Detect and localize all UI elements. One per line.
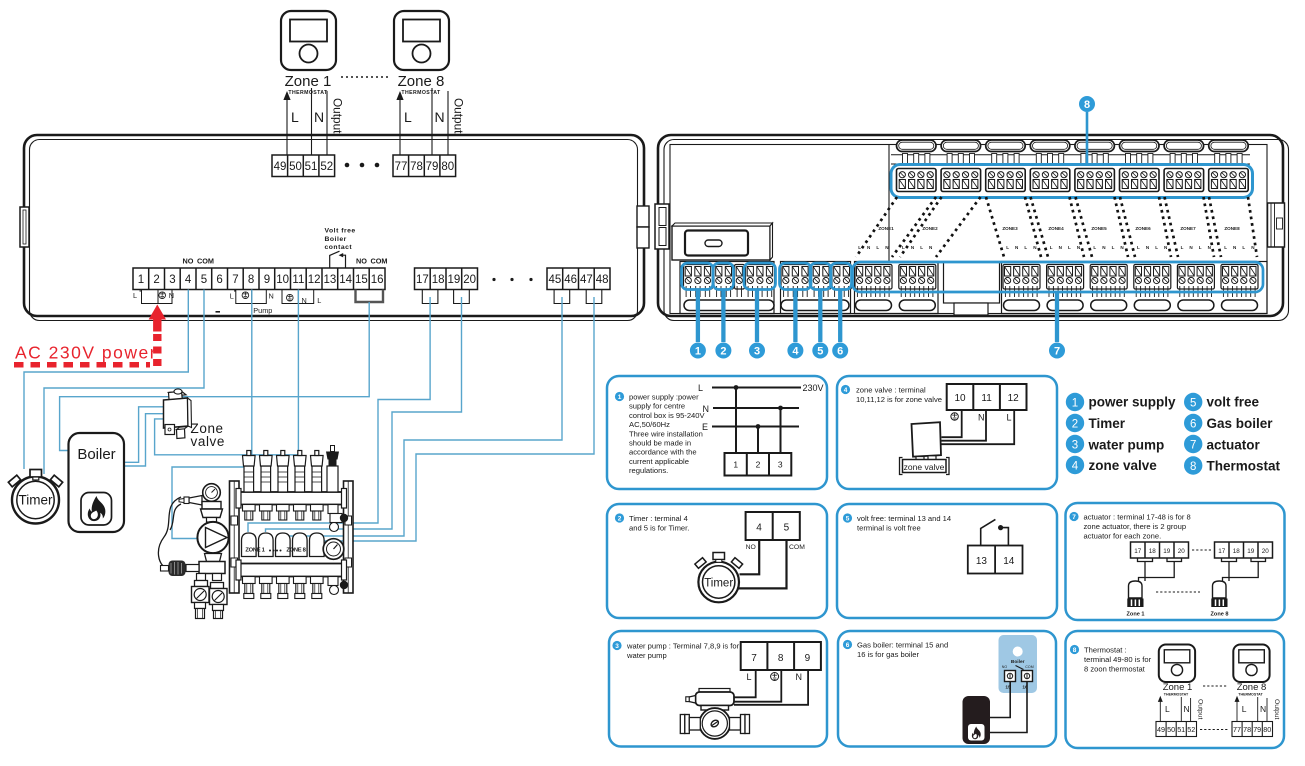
svg-text:L: L <box>1007 413 1012 423</box>
svg-text:L: L <box>291 109 299 125</box>
svg-text:51: 51 <box>305 161 318 173</box>
svg-text:79: 79 <box>426 161 439 173</box>
svg-text:terminal is volt free: terminal is volt free <box>857 523 921 532</box>
svg-text:78: 78 <box>410 161 423 173</box>
svg-text:1: 1 <box>695 346 701 358</box>
svg-text:L: L <box>1112 245 1115 250</box>
svg-text:3: 3 <box>754 346 760 358</box>
svg-text:N: N <box>978 413 985 423</box>
svg-text:L: L <box>1224 245 1227 250</box>
svg-text:NO: NO <box>1002 665 1008 669</box>
svg-text:L: L <box>1199 245 1202 250</box>
svg-text:7: 7 <box>232 274 238 286</box>
svg-text:COM: COM <box>197 257 214 266</box>
svg-text:L: L <box>1155 245 1158 250</box>
svg-text:17: 17 <box>416 274 429 286</box>
svg-text:51: 51 <box>1177 725 1185 734</box>
svg-text:7: 7 <box>751 653 757 664</box>
svg-text:contact: contact <box>325 244 353 251</box>
svg-text:L: L <box>1093 245 1096 250</box>
svg-text:regulations.: regulations. <box>629 466 668 475</box>
svg-text:1: 1 <box>733 460 738 470</box>
svg-text:77: 77 <box>1233 725 1241 734</box>
svg-text:6: 6 <box>1190 419 1196 431</box>
svg-text:Timer: Timer <box>704 578 733 590</box>
svg-text:ZONE4: ZONE4 <box>1048 226 1064 231</box>
svg-text:Pump: Pump <box>253 306 272 315</box>
svg-text:N: N <box>1260 704 1266 714</box>
svg-text:N: N <box>1208 245 1212 250</box>
svg-text:N: N <box>1184 704 1190 714</box>
svg-text:49: 49 <box>1157 725 1165 734</box>
svg-text:ZONE 8: ZONE 8 <box>286 548 306 554</box>
svg-text:and 5 is for Timer.: and 5 is for Timer. <box>629 523 689 532</box>
svg-text:Output: Output <box>1273 699 1280 720</box>
svg-text:N: N <box>1120 245 1124 250</box>
svg-text:12: 12 <box>308 274 321 286</box>
svg-text:THERMOSTAT: THERMOSTAT <box>401 90 441 96</box>
svg-text:3: 3 <box>615 643 619 650</box>
svg-text:8: 8 <box>778 653 784 664</box>
svg-text:should be made in: should be made in <box>629 439 691 448</box>
svg-text:AC,50/60Hz: AC,50/60Hz <box>629 420 670 429</box>
svg-text:N: N <box>1189 245 1193 250</box>
svg-text:20: 20 <box>1262 548 1270 555</box>
svg-text:L: L <box>404 109 412 125</box>
svg-text:14: 14 <box>339 274 352 286</box>
svg-text:5: 5 <box>201 274 207 286</box>
svg-text:3: 3 <box>778 460 783 470</box>
svg-text:Zone 1: Zone 1 <box>1163 682 1193 693</box>
svg-text:Boiler: Boiler <box>1011 659 1025 665</box>
svg-text:water pump : Terminal 7,8,9 is: water pump : Terminal 7,8,9 is for <box>626 642 740 651</box>
svg-text:5: 5 <box>817 346 823 358</box>
svg-text:4: 4 <box>756 523 762 534</box>
svg-text:ZONE2: ZONE2 <box>922 226 938 231</box>
svg-text:L: L <box>1242 245 1245 250</box>
svg-text:actuator for each zone.: actuator for each zone. <box>1084 532 1162 541</box>
svg-text:ZONE 1: ZONE 1 <box>245 548 265 554</box>
svg-text:accordance with the: accordance with the <box>629 448 697 457</box>
svg-text:ZONE3: ZONE3 <box>1002 226 1018 231</box>
svg-text:L: L <box>133 291 137 300</box>
svg-text:Boiler: Boiler <box>77 446 115 463</box>
svg-text:COM: COM <box>789 544 805 551</box>
svg-text:N: N <box>929 245 933 250</box>
svg-text:10: 10 <box>954 393 966 404</box>
svg-text:ZONE6: ZONE6 <box>1135 226 1151 231</box>
svg-text:NO: NO <box>356 257 367 266</box>
svg-text:5: 5 <box>1190 398 1196 410</box>
svg-text:230V: 230V <box>803 383 824 393</box>
svg-text:8: 8 <box>1084 99 1090 111</box>
svg-text:E: E <box>702 422 708 432</box>
svg-text:N: N <box>1164 245 1168 250</box>
svg-text:L: L <box>747 672 752 682</box>
svg-text:N: N <box>269 292 274 301</box>
svg-text:volt free: terminal 13 and 14: volt free: terminal 13 and 14 <box>857 514 951 523</box>
svg-text:zone valve: zone valve <box>1089 458 1158 473</box>
svg-text:4: 4 <box>792 346 799 358</box>
svg-text:45: 45 <box>549 274 562 286</box>
svg-text:5: 5 <box>846 516 850 523</box>
svg-text:zone actuator, there is 2 grou: zone actuator, there is 2 group <box>1084 522 1187 531</box>
svg-text:L: L <box>1181 245 1184 250</box>
svg-text:80: 80 <box>441 161 454 173</box>
svg-text:11: 11 <box>292 274 304 286</box>
svg-text:9: 9 <box>264 274 270 286</box>
svg-text:volt free: volt free <box>1207 395 1260 410</box>
svg-text:N: N <box>796 672 803 682</box>
svg-text:NO: NO <box>183 257 194 266</box>
svg-text:Volt free: Volt free <box>325 228 356 235</box>
svg-text:6: 6 <box>846 642 850 649</box>
svg-text:6: 6 <box>837 346 843 358</box>
svg-text:power supply: power supply <box>1089 395 1177 410</box>
svg-text:9: 9 <box>805 653 811 664</box>
svg-text:6: 6 <box>216 274 222 286</box>
svg-text:17: 17 <box>1218 548 1226 555</box>
svg-text:7: 7 <box>1190 440 1196 452</box>
svg-text:N: N <box>1077 245 1081 250</box>
svg-text:13: 13 <box>976 556 988 567</box>
svg-text:L: L <box>1024 245 1027 250</box>
svg-text:50: 50 <box>1167 725 1175 734</box>
svg-text:N: N <box>867 245 871 250</box>
svg-text:N: N <box>314 109 324 125</box>
svg-text:ZONE8: ZONE8 <box>1224 226 1240 231</box>
svg-text:water pump: water pump <box>1088 438 1165 453</box>
svg-text:50: 50 <box>289 161 302 173</box>
svg-text:L: L <box>1068 245 1071 250</box>
svg-text:THERMOSTAT: THERMOSTAT <box>1164 693 1189 697</box>
svg-text:5: 5 <box>784 523 790 534</box>
svg-text:20: 20 <box>463 274 476 286</box>
svg-text:THERMOSTAT: THERMOSTAT <box>288 90 328 96</box>
svg-text:zone valve: zone valve <box>904 462 945 472</box>
svg-text:1: 1 <box>1072 398 1078 410</box>
svg-text:Zone 8: Zone 8 <box>398 73 445 90</box>
svg-text:N: N <box>703 404 710 414</box>
svg-text:Output: Output <box>331 98 345 134</box>
svg-text:AC 230V power: AC 230V power <box>15 343 157 363</box>
svg-text:48: 48 <box>596 274 609 286</box>
svg-text:79: 79 <box>1253 725 1261 734</box>
svg-text:77: 77 <box>395 161 408 173</box>
svg-text:52: 52 <box>1187 725 1195 734</box>
svg-text:16 is for gas boiler: 16 is for gas boiler <box>857 650 920 659</box>
svg-text:10,11,12 is for zone valve: 10,11,12 is for zone valve <box>856 395 942 404</box>
svg-text:78: 78 <box>1243 725 1251 734</box>
svg-text:52: 52 <box>320 161 333 173</box>
svg-text:2: 2 <box>756 460 761 470</box>
svg-text:3: 3 <box>169 274 175 286</box>
svg-text:current applicable: current applicable <box>629 457 689 466</box>
svg-text:15: 15 <box>355 274 368 286</box>
svg-text:L: L <box>920 245 923 250</box>
svg-text:L: L <box>858 245 861 250</box>
svg-text:2: 2 <box>618 516 622 523</box>
svg-text:4: 4 <box>1072 461 1079 473</box>
svg-text:N: N <box>1059 245 1063 250</box>
svg-text:water pump: water pump <box>626 651 667 660</box>
svg-text:Thermostat :: Thermostat : <box>1084 646 1127 655</box>
svg-text:COM: COM <box>370 257 387 266</box>
svg-text:10: 10 <box>276 274 289 286</box>
svg-text:2: 2 <box>720 346 726 358</box>
svg-text:L: L <box>1006 245 1009 250</box>
svg-text:12: 12 <box>1008 393 1020 404</box>
svg-text:Zone 1: Zone 1 <box>1126 612 1144 618</box>
svg-text:18: 18 <box>1233 548 1241 555</box>
svg-text:1: 1 <box>138 274 144 286</box>
svg-text:N: N <box>1146 245 1150 250</box>
svg-text:L: L <box>230 292 234 301</box>
svg-text:L: L <box>902 245 905 250</box>
svg-text:L: L <box>317 296 321 305</box>
svg-text:47: 47 <box>580 274 593 286</box>
svg-text:Output: Output <box>1197 699 1204 720</box>
svg-text:N: N <box>911 245 915 250</box>
svg-text:7: 7 <box>1054 346 1060 358</box>
svg-text:THERMOSTAT: THERMOSTAT <box>1238 693 1263 697</box>
svg-text:Timer : terminal 4: Timer : terminal 4 <box>629 514 688 523</box>
svg-text:18: 18 <box>432 274 445 286</box>
svg-text:2: 2 <box>1072 419 1078 431</box>
svg-text:terminal 49-80 is for: terminal 49-80 is for <box>1084 655 1152 664</box>
svg-text:zone valve : terminal: zone valve : terminal <box>856 386 926 395</box>
svg-text:20: 20 <box>1178 548 1186 555</box>
svg-text:8: 8 <box>1073 647 1077 654</box>
svg-text:8: 8 <box>248 274 254 286</box>
svg-text:16: 16 <box>371 274 384 286</box>
svg-text:N: N <box>1233 245 1237 250</box>
svg-text:control box is 95-240V: control box is 95-240V <box>629 411 705 420</box>
svg-text:1: 1 <box>618 394 622 401</box>
svg-text:ZONE1: ZONE1 <box>878 226 894 231</box>
svg-text:ZONE7: ZONE7 <box>1180 226 1196 231</box>
svg-text:N: N <box>1251 245 1255 250</box>
svg-text:4: 4 <box>844 387 848 394</box>
svg-text:NO: NO <box>746 544 756 551</box>
svg-text:L: L <box>1050 245 1053 250</box>
svg-text:N: N <box>1102 245 1106 250</box>
svg-text:valve: valve <box>191 434 226 449</box>
svg-text:8 zoon thermostat: 8 zoon thermostat <box>1084 665 1146 674</box>
svg-text:49: 49 <box>274 161 287 173</box>
svg-text:19: 19 <box>1163 548 1171 555</box>
svg-text:L: L <box>876 245 879 250</box>
svg-text:COM: COM <box>1025 665 1033 669</box>
svg-text:Timer: Timer <box>19 493 53 508</box>
svg-text:4: 4 <box>185 274 192 286</box>
svg-text:Thermostat: Thermostat <box>1207 459 1281 474</box>
svg-text:power supply :power: power supply :power <box>629 393 699 402</box>
svg-text:N: N <box>1033 245 1037 250</box>
svg-text:46: 46 <box>564 274 577 286</box>
svg-text:11: 11 <box>981 393 992 404</box>
svg-text:N: N <box>169 291 174 300</box>
svg-text:supply for centre: supply for centre <box>629 402 685 411</box>
svg-text:Zone 1: Zone 1 <box>285 73 332 90</box>
svg-text:actuator: actuator <box>1207 438 1261 453</box>
svg-text:Output: Output <box>452 98 466 134</box>
svg-text:N: N <box>302 296 307 305</box>
svg-text:17: 17 <box>1134 548 1142 555</box>
svg-text:Timer: Timer <box>1089 416 1126 431</box>
svg-text:actuator : terminal 17-48 is f: actuator : terminal 17-48 is for 8 <box>1084 513 1191 522</box>
svg-text:19: 19 <box>448 274 461 286</box>
svg-text:80: 80 <box>1263 725 1271 734</box>
svg-text:8: 8 <box>1190 461 1196 473</box>
svg-text:2: 2 <box>153 274 159 286</box>
svg-text:Gas boiler: Gas boiler <box>1207 416 1274 431</box>
svg-text:13: 13 <box>324 274 337 286</box>
svg-text:Three wire installation: Three wire installation <box>629 429 703 438</box>
svg-text:19: 19 <box>1247 548 1255 555</box>
svg-text:Zone 8: Zone 8 <box>1210 612 1228 618</box>
svg-text:N: N <box>1015 245 1019 250</box>
svg-text:Gas boiler: terminal 15 and: Gas boiler: terminal 15 and <box>857 641 948 650</box>
svg-text:Zone 8: Zone 8 <box>1237 682 1267 693</box>
svg-text:Boiler: Boiler <box>325 236 347 243</box>
svg-text:L: L <box>1165 704 1170 714</box>
svg-text:L: L <box>698 383 703 393</box>
svg-text:3: 3 <box>1072 440 1078 452</box>
svg-text:18: 18 <box>1149 548 1157 555</box>
svg-text:L: L <box>1242 704 1247 714</box>
svg-text:14: 14 <box>1003 556 1015 567</box>
svg-text:7: 7 <box>1072 514 1076 521</box>
svg-text:L: L <box>1137 245 1140 250</box>
svg-text:ZONE5: ZONE5 <box>1091 226 1107 231</box>
svg-text:N: N <box>435 109 445 125</box>
